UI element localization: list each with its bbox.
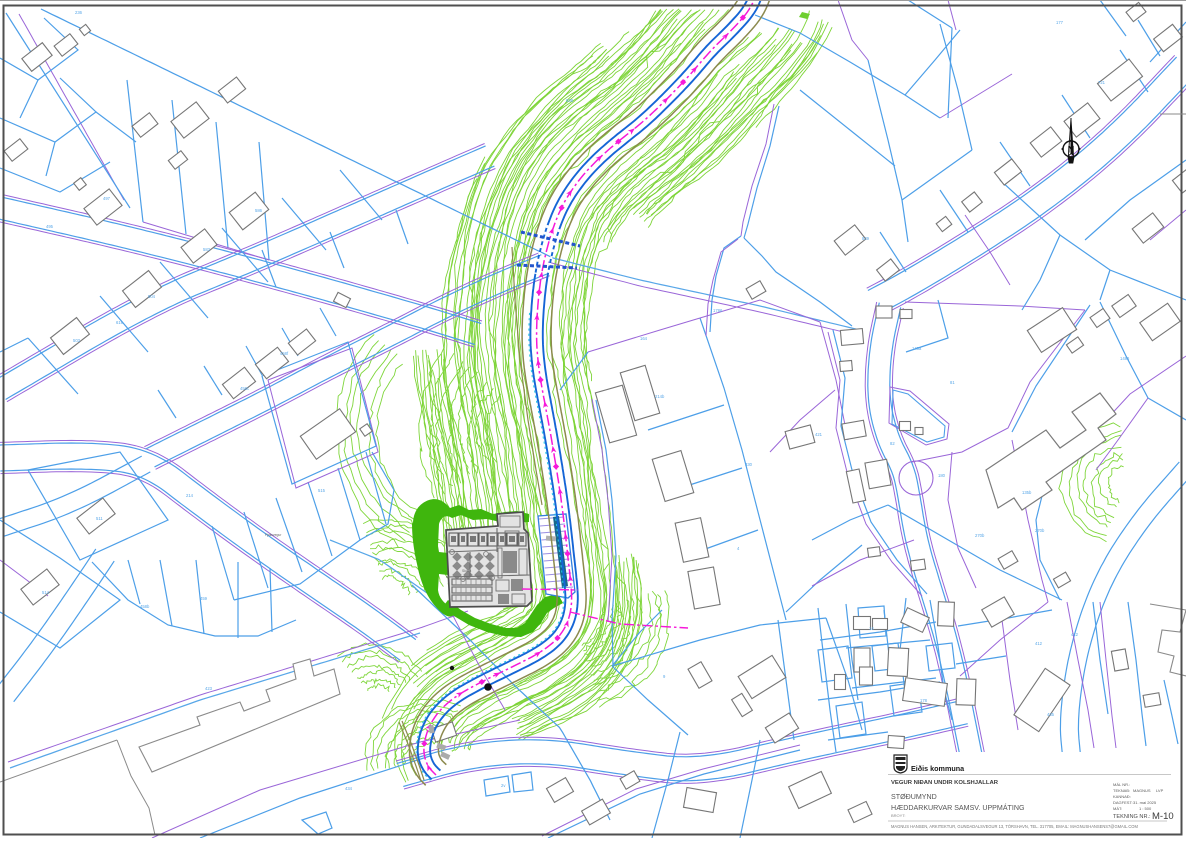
svg-text:Skúlin: Skúlin	[462, 569, 471, 573]
svg-text:LVP: LVP	[1156, 788, 1164, 793]
svg-text:145a: 145a	[912, 346, 922, 351]
svg-text:497: 497	[103, 196, 111, 201]
svg-text:583: 583	[203, 247, 211, 252]
svg-text:1 : 500: 1 : 500	[1139, 806, 1152, 811]
svg-text:1486: 1486	[1120, 356, 1130, 361]
svg-text:458b: 458b	[140, 604, 150, 609]
svg-text:236: 236	[75, 10, 83, 15]
svg-text:503: 503	[73, 338, 81, 343]
svg-text:STØÐUMYND: STØÐUMYND	[891, 793, 937, 801]
svg-text:VEGUR NIÐAN UNDIR KOLSHJALLAR: VEGUR NIÐAN UNDIR KOLSHJALLAR	[891, 780, 999, 786]
svg-text:164: 164	[640, 336, 648, 341]
svg-text:MÁT:: MÁT:	[1113, 806, 1122, 811]
svg-text:458f: 458f	[280, 351, 289, 356]
svg-text:N: N	[1068, 145, 1075, 155]
svg-text:Fjallsvegur: Fjallsvegur	[265, 533, 282, 537]
svg-text:511: 511	[96, 516, 103, 521]
svg-text:14: 14	[869, 626, 874, 631]
svg-text:177: 177	[1056, 20, 1064, 25]
svg-text:514: 514	[42, 590, 50, 595]
svg-text:178: 178	[920, 698, 928, 703]
svg-text:330: 330	[745, 462, 753, 467]
svg-text:TEKNING NR.:: TEKNING NR.:	[1113, 814, 1151, 820]
svg-text:1786: 1786	[713, 308, 723, 313]
svg-text:829: 829	[862, 236, 870, 241]
svg-text:434: 434	[345, 786, 353, 791]
svg-text:458c: 458c	[240, 386, 249, 391]
svg-text:412: 412	[1035, 641, 1043, 646]
svg-text:638: 638	[566, 98, 574, 103]
svg-text:459: 459	[200, 596, 208, 601]
svg-text:M-10: M-10	[1152, 811, 1174, 822]
svg-text:423: 423	[205, 686, 213, 691]
svg-text:421: 421	[815, 432, 823, 437]
svg-text:MÁL NR.:: MÁL NR.:	[1113, 782, 1130, 787]
svg-text:DAGFEST:: DAGFEST:	[1113, 800, 1133, 805]
svg-text:135b: 135b	[1022, 490, 1032, 495]
svg-text:270b: 270b	[1035, 528, 1045, 533]
svg-text:435: 435	[1047, 712, 1055, 717]
svg-text:TEKNAÐ:: TEKNAÐ:	[1113, 788, 1130, 793]
svg-text:412: 412	[1071, 632, 1079, 637]
svg-text:82: 82	[890, 441, 895, 446]
svg-text:495: 495	[46, 224, 54, 229]
svg-text:HÆDDARKURVAR SAMSV. UPPMÁTING: HÆDDARKURVAR SAMSV. UPPMÁTING	[891, 803, 1025, 812]
svg-text:MAGNUS HANSEN, ARKITEKTUR, GUN: MAGNUS HANSEN, ARKITEKTUR, GUNDADALSVEGU…	[891, 824, 1138, 829]
svg-text:515: 515	[318, 488, 326, 493]
svg-text:81: 81	[950, 380, 955, 385]
svg-text:Eiðis kommuna: Eiðis kommuna	[911, 764, 965, 773]
svg-text:721: 721	[1098, 80, 1106, 85]
svg-text:214: 214	[186, 493, 194, 498]
svg-text:BROYT:: BROYT:	[891, 813, 905, 818]
svg-text:270b: 270b	[975, 533, 985, 538]
svg-text:180: 180	[938, 473, 946, 478]
svg-text:504: 504	[148, 294, 156, 299]
svg-text:31. mai 2025: 31. mai 2025	[1133, 800, 1157, 805]
svg-text:MAGNUS: MAGNUS	[1133, 788, 1151, 793]
svg-text:619: 619	[116, 320, 124, 325]
svg-text:KANNAÐ:: KANNAÐ:	[1113, 794, 1131, 799]
svg-text:214b: 214b	[655, 394, 665, 399]
svg-text:586: 586	[255, 208, 263, 213]
